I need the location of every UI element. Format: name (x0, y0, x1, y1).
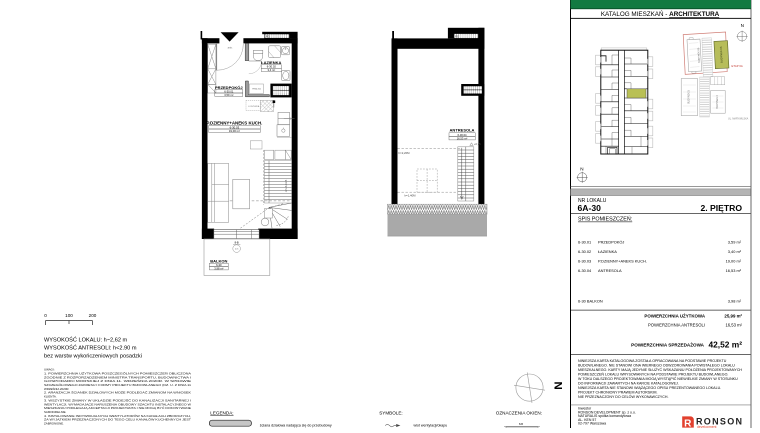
svg-text:25,99 m²: 25,99 m² (724, 313, 742, 318)
svg-text:ściana działowa nadająca się d: ściana działowa nadająca się do przebudo… (260, 423, 332, 427)
svg-text:19,00 m²: 19,00 m² (726, 259, 742, 264)
svg-text:LEGENDA:: LEGENDA: (210, 410, 233, 415)
svg-text:POWIERZCHNIA ANTRESOLI: POWIERZCHNIA ANTRESOLI (648, 323, 705, 328)
svg-text:6-30 BALKON: 6-30 BALKON (578, 299, 603, 304)
svg-text:UL. MARYWILSKA: UL. MARYWILSKA (728, 118, 749, 121)
svg-text:ŁAZIENKA: ŁAZIENKA (598, 249, 617, 254)
svg-text:BUDYNEK 4: BUDYNEK 4 (716, 94, 719, 108)
svg-text:N: N (580, 167, 583, 172)
svg-text:PO: PO (455, 35, 459, 39)
svg-text:BUDOWLANEGO. NIE STANOWI ON: BUDOWLANEGO. NIE STANOWI ONA WIERNEGO OD… (578, 363, 735, 367)
svg-text:2. PIĘTRO: 2. PIĘTRO (700, 203, 742, 213)
svg-text:3,59 m²: 3,59 m² (224, 93, 233, 97)
svg-text:OZNACZENIA OKIEN:: OZNACZENIA OKIEN: (496, 411, 542, 416)
svg-text:42,52 m²: 42,52 m² (708, 340, 742, 350)
svg-text:KATALOG MIESZKAŃ - ARCHITEKTUR: KATALOG MIESZKAŃ - ARCHITEKTURA (601, 9, 720, 18)
svg-text:NINIEJSZA KARTA KATALOGOWA: NINIEJSZA KARTA KATALOGOWA ZOSTAŁA OPRAC… (578, 359, 727, 363)
svg-text:3,98 m²: 3,98 m² (214, 266, 223, 270)
svg-text:6-30.02: 6-30.02 (578, 249, 591, 254)
svg-text:wlot wentylacji/okapu: wlot wentylacji/okapu (414, 424, 448, 428)
svg-text:PO: PO (266, 34, 270, 38)
svg-text:8-B: 8-B (235, 240, 239, 244)
svg-text:6-30: 6-30 (216, 263, 222, 267)
svg-text:PROJEKT CHRONIONY PRAWEM AUTOR: PROJEKT CHRONIONY PRAWEM AUTORSKIM. (578, 390, 658, 394)
svg-text:MIESZKALNEGO. KARTY MAJĄ JEDY: MIESZKALNEGO. KARTY MAJĄ JEDYNIE SŁUŻYĆ … (578, 367, 742, 372)
svg-text:ŁAZIENKA: ŁAZIENKA (261, 60, 281, 65)
svg-text:3,59 m²: 3,59 m² (728, 240, 742, 245)
svg-text:ETAP 6A: ETAP 6A (732, 64, 743, 68)
svg-text:100: 100 (65, 313, 73, 318)
svg-text:WYSOKOŚĆ LOKALU: h~2,62 m: WYSOKOŚĆ LOKALU: h~2,62 m (44, 336, 128, 344)
svg-text:16,53 m²: 16,53 m² (726, 268, 742, 273)
svg-text:6A-30: 6A-30 (578, 203, 602, 213)
svg-text:R: R (684, 418, 692, 428)
svg-text:6-30.01: 6-30.01 (578, 240, 591, 245)
svg-text:8-B: 8-B (519, 422, 523, 426)
svg-text:6-30.04: 6-30.04 (578, 268, 592, 273)
svg-text:POMIESZCZEŃ LOKALU WRYSOWANYCH: POMIESZCZEŃ LOKALU WRYSOWANYCH NA PODSTA… (578, 372, 728, 376)
svg-text:bez warstw wykończeniowych pos: bez warstw wykończeniowych posadzki (44, 354, 142, 360)
svg-text:LODÓWKA: LODÓWKA (248, 105, 260, 108)
svg-text:POWIERZCHNIA UŻYTKOWA: POWIERZCHNIA UŻYTKOWA (644, 313, 705, 318)
svg-text:3,98 m²: 3,98 m² (728, 299, 742, 304)
svg-text:PRALKA: PRALKA (252, 88, 261, 91)
svg-text:P.DZIENNY+ANEKS KUCH.: P.DZIENNY+ANEKS KUCH. (598, 259, 647, 264)
svg-text:3,40 m²: 3,40 m² (728, 249, 742, 254)
svg-text:POWIERZCHNIA SPRZEDAŻOWA: POWIERZCHNIA SPRZEDAŻOWA (631, 341, 705, 347)
svg-text:W TOKU DALSZEGO PROJEKTOWAN: W TOKU DALSZEGO PROJEKTOWANIA MOGĄ WYSTĄ… (578, 376, 738, 381)
svg-text:SYMBOLE:: SYMBOLE: (379, 410, 403, 415)
svg-text:BALKON: BALKON (210, 258, 227, 263)
svg-text:N: N (741, 23, 744, 28)
svg-text:PRZEDPOKÓJ: PRZEDPOKÓJ (598, 240, 624, 245)
svg-text:ZABRONIONE.: ZABRONIONE. (44, 422, 64, 426)
svg-text:BUDYNEK 5: BUDYNEK 5 (687, 90, 690, 104)
svg-text:6-30.04: 6-30.04 (457, 133, 467, 137)
svg-text:ANTRESOLA: ANTRESOLA (450, 128, 475, 133)
svg-text:0: 0 (44, 313, 47, 318)
svg-text:WYSOKOŚĆ ANTRESOLI: h<2.90 m: WYSOKOŚĆ ANTRESOLI: h<2.90 m (44, 344, 137, 352)
svg-text:PRZEDPOKÓJ: PRZEDPOKÓJ (215, 85, 243, 90)
svg-text:SPIS POMIESZCZEŃ:: SPIS POMIESZCZEŃ: (578, 216, 632, 223)
svg-text:N: N (551, 381, 563, 389)
svg-text:h=2,20M: h=2,20M (399, 151, 411, 155)
svg-text:ANTRESOLA: ANTRESOLA (598, 268, 622, 273)
svg-text:+0,75: +0,75 (474, 142, 481, 146)
svg-text:NINIEJSZA KARTA NIE STANOWI WI: NINIEJSZA KARTA NIE STANOWI WIĄŻĄCEGO OP… (578, 385, 721, 390)
svg-text:19,00 m²: 19,00 m² (229, 129, 240, 133)
svg-text:h=1,40M: h=1,40M (405, 193, 417, 197)
svg-text:NIE PRZEZNACZONY DO CELÓW WYKO: NIE PRZEZNACZONY DO CELÓW WYKONAWCZYCH. (578, 394, 668, 399)
svg-text:6-30.03: 6-30.03 (578, 259, 591, 264)
svg-text:antr.: antr. (228, 46, 233, 50)
svg-text:16,53 m²: 16,53 m² (725, 323, 742, 328)
svg-text:ZA WYJĄTKIEM PRZEZNACZONYCH DO: ZA WYJĄTKIEM PRZEZNACZONYCH DO TEGO CELU… (44, 417, 191, 422)
svg-text:3,4 m²: 3,4 m² (267, 68, 275, 72)
svg-text:16,53 m²: 16,53 m² (457, 136, 468, 140)
svg-text:17x18,2x25: 17x18,2x25 (285, 179, 288, 192)
svg-text:2. ARANŻACJA ŚCIANEK DZIAŁOWYC: 2. ARANŻACJA ŚCIANEK DZIAŁOWYCH MOŻE POD… (44, 390, 191, 395)
svg-text:6-30.01: 6-30.01 (224, 89, 234, 93)
svg-text:200: 200 (89, 313, 97, 318)
svg-text:02-797 Warszawa: 02-797 Warszawa (578, 422, 606, 426)
svg-text:DO INFORMACJI ZAWARTYCH NA KAR: DO INFORMACJI ZAWARTYCH NA KARCIE KATALO… (578, 381, 679, 385)
